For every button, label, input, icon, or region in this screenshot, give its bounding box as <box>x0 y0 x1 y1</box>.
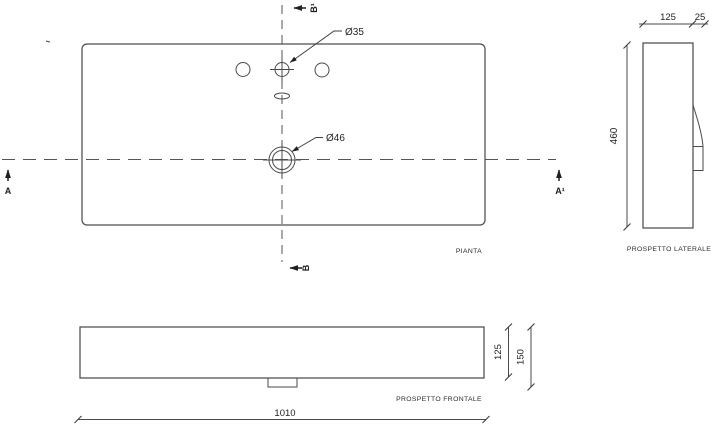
lateral-view-label: PROSPETTO LATERALE <box>627 246 711 253</box>
lateral-ledge-label: 25 <box>695 12 706 23</box>
frontal-outline <box>80 327 484 378</box>
lateral-outline <box>643 43 693 228</box>
stray-mark <box>46 41 50 42</box>
section-label-a: A <box>5 186 12 196</box>
plan-view-label: PIANTA <box>456 248 482 255</box>
drain-diameter-label: Ø46 <box>326 133 345 144</box>
drain-hole <box>263 143 301 178</box>
faucet-hole-left <box>236 63 250 77</box>
frontal-view-label: PROSPETTO FRONTALE <box>396 396 482 403</box>
dimension-depth: 460 <box>609 42 631 231</box>
dimension-width: 1010 <box>75 408 490 423</box>
lateral-profile-curve <box>693 105 703 146</box>
section-marker-a1: A¹ <box>555 170 565 196</box>
front-total-height-label: 150 <box>516 349 527 365</box>
dimension-lateral-top: 125 25 <box>639 12 709 28</box>
section-label-b1: B¹ <box>309 3 319 13</box>
section-marker-a: A <box>5 170 12 196</box>
leader-drain-diameter <box>292 138 323 152</box>
plan-outline <box>82 44 485 225</box>
depth-label: 460 <box>609 127 620 144</box>
lateral-thickness-label: 125 <box>660 12 676 23</box>
front-height-label: 125 <box>493 344 504 360</box>
frontal-view: 1010 125 150 PROSPETTO FRONTALE <box>75 324 535 424</box>
washbasin-technical-drawing: Ø35 Ø46 A A¹ B¹ B PIANTA <box>0 0 714 425</box>
lateral-bracket <box>693 147 703 171</box>
faucet-hole-right <box>315 63 329 77</box>
section-label-b: B <box>301 264 311 271</box>
lateral-view: 125 25 460 PROSPETTO LATERALE <box>609 12 711 253</box>
plan-view: Ø35 Ø46 A A¹ B¹ B PIANTA <box>2 3 565 271</box>
dimension-front-total-height: 150 <box>516 324 535 391</box>
technical-drawing-sheet: Ø35 Ø46 A A¹ B¹ B PIANTA <box>0 0 714 425</box>
section-label-a1: A¹ <box>555 186 565 196</box>
leader-faucet-diameter <box>290 31 342 63</box>
faucet-diameter-label: Ø35 <box>345 27 364 38</box>
drain-tab <box>268 378 297 387</box>
section-marker-b1: B¹ <box>294 3 319 13</box>
faucet-hole-center <box>270 57 294 82</box>
width-label: 1010 <box>274 408 295 419</box>
section-marker-b: B <box>290 264 311 271</box>
dimension-front-height: 125 <box>493 324 512 381</box>
